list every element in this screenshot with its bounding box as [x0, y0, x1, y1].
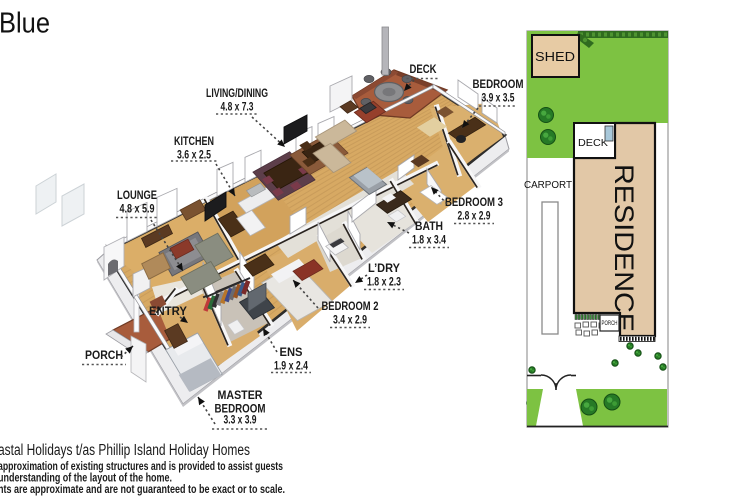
svg-text:3.6 x 2.5: 3.6 x 2.5: [177, 150, 211, 162]
svg-text:BATH: BATH: [415, 221, 443, 233]
svg-text:BEDROOM 3: BEDROOM 3: [445, 197, 503, 209]
svg-text:PORCH: PORCH: [85, 350, 123, 362]
svg-text:1.8 x 2.3: 1.8 x 2.3: [367, 277, 401, 289]
svg-text:PORCH: PORCH: [602, 321, 618, 327]
svg-text:astal Holidays t/as Phillip Is: astal Holidays t/as Phillip Island Holid…: [0, 442, 250, 459]
svg-text:3.9 x 3.5: 3.9 x 3.5: [482, 93, 515, 105]
svg-text:RESIDENCE: RESIDENCE: [609, 164, 639, 332]
svg-text:4.8 x 5.9: 4.8 x 5.9: [120, 204, 155, 216]
svg-text:3.4 x 2.9: 3.4 x 2.9: [333, 315, 367, 327]
svg-text:1.9 x 2.4: 1.9 x 2.4: [274, 361, 308, 373]
svg-text:understanding of the layout of: understanding of the layout of the home.: [0, 473, 172, 485]
svg-text:LOUNGE: LOUNGE: [117, 190, 157, 202]
svg-text:BEDROOM: BEDROOM: [473, 79, 524, 91]
svg-text:4.8 x 7.3: 4.8 x 7.3: [221, 102, 254, 114]
svg-text:DECK: DECK: [410, 64, 438, 76]
svg-text:KITCHEN: KITCHEN: [174, 136, 214, 148]
svg-text:SHED: SHED: [535, 50, 575, 64]
svg-text:DECK: DECK: [578, 137, 608, 149]
svg-text:1.8 x 3.4: 1.8 x 3.4: [412, 235, 446, 247]
svg-text:ENS: ENS: [280, 347, 303, 359]
svg-text:approximation of existing stru: approximation of existing structures and…: [0, 461, 283, 473]
svg-text:CARPORT: CARPORT: [524, 180, 572, 191]
svg-text:LIVING/DINING: LIVING/DINING: [206, 88, 268, 100]
svg-text:BEDROOM 2: BEDROOM 2: [322, 301, 379, 313]
svg-text:2.8 x 2.9: 2.8 x 2.9: [458, 211, 491, 223]
svg-text:L’DRY: L’DRY: [368, 263, 400, 275]
svg-text:MASTER: MASTER: [218, 390, 264, 402]
svg-text:Blue: Blue: [0, 8, 50, 40]
svg-text:3.3 x 3.9: 3.3 x 3.9: [224, 415, 257, 427]
svg-text:ENTRY: ENTRY: [149, 306, 187, 318]
svg-text:nts are approximate and are no: nts are approximate and are not guarante…: [0, 484, 285, 496]
